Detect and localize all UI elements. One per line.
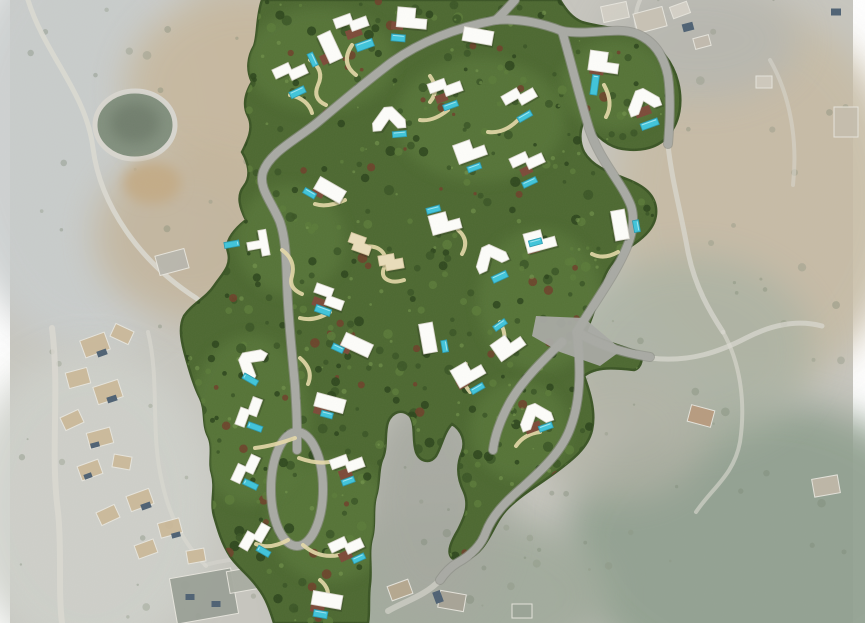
site-plan-map — [0, 0, 865, 623]
photo-grain — [10, 0, 853, 623]
masterplan-frame — [0, 0, 865, 623]
